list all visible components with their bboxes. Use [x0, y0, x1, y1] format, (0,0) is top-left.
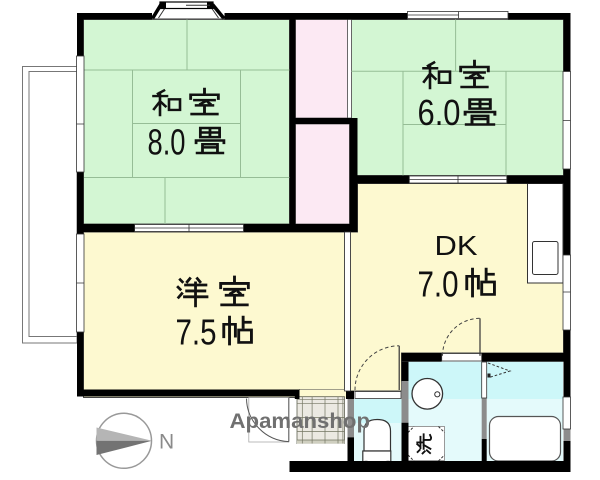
svg-text:7.5: 7.5 [176, 312, 217, 353]
svg-text:Apamanshop: Apamanshop [230, 409, 371, 433]
svg-text:8.0: 8.0 [148, 122, 186, 163]
svg-text:DK: DK [435, 230, 478, 261]
svg-text:N: N [159, 431, 174, 454]
svg-text:7.0: 7.0 [418, 264, 459, 305]
svg-text:6.0: 6.0 [418, 92, 461, 133]
